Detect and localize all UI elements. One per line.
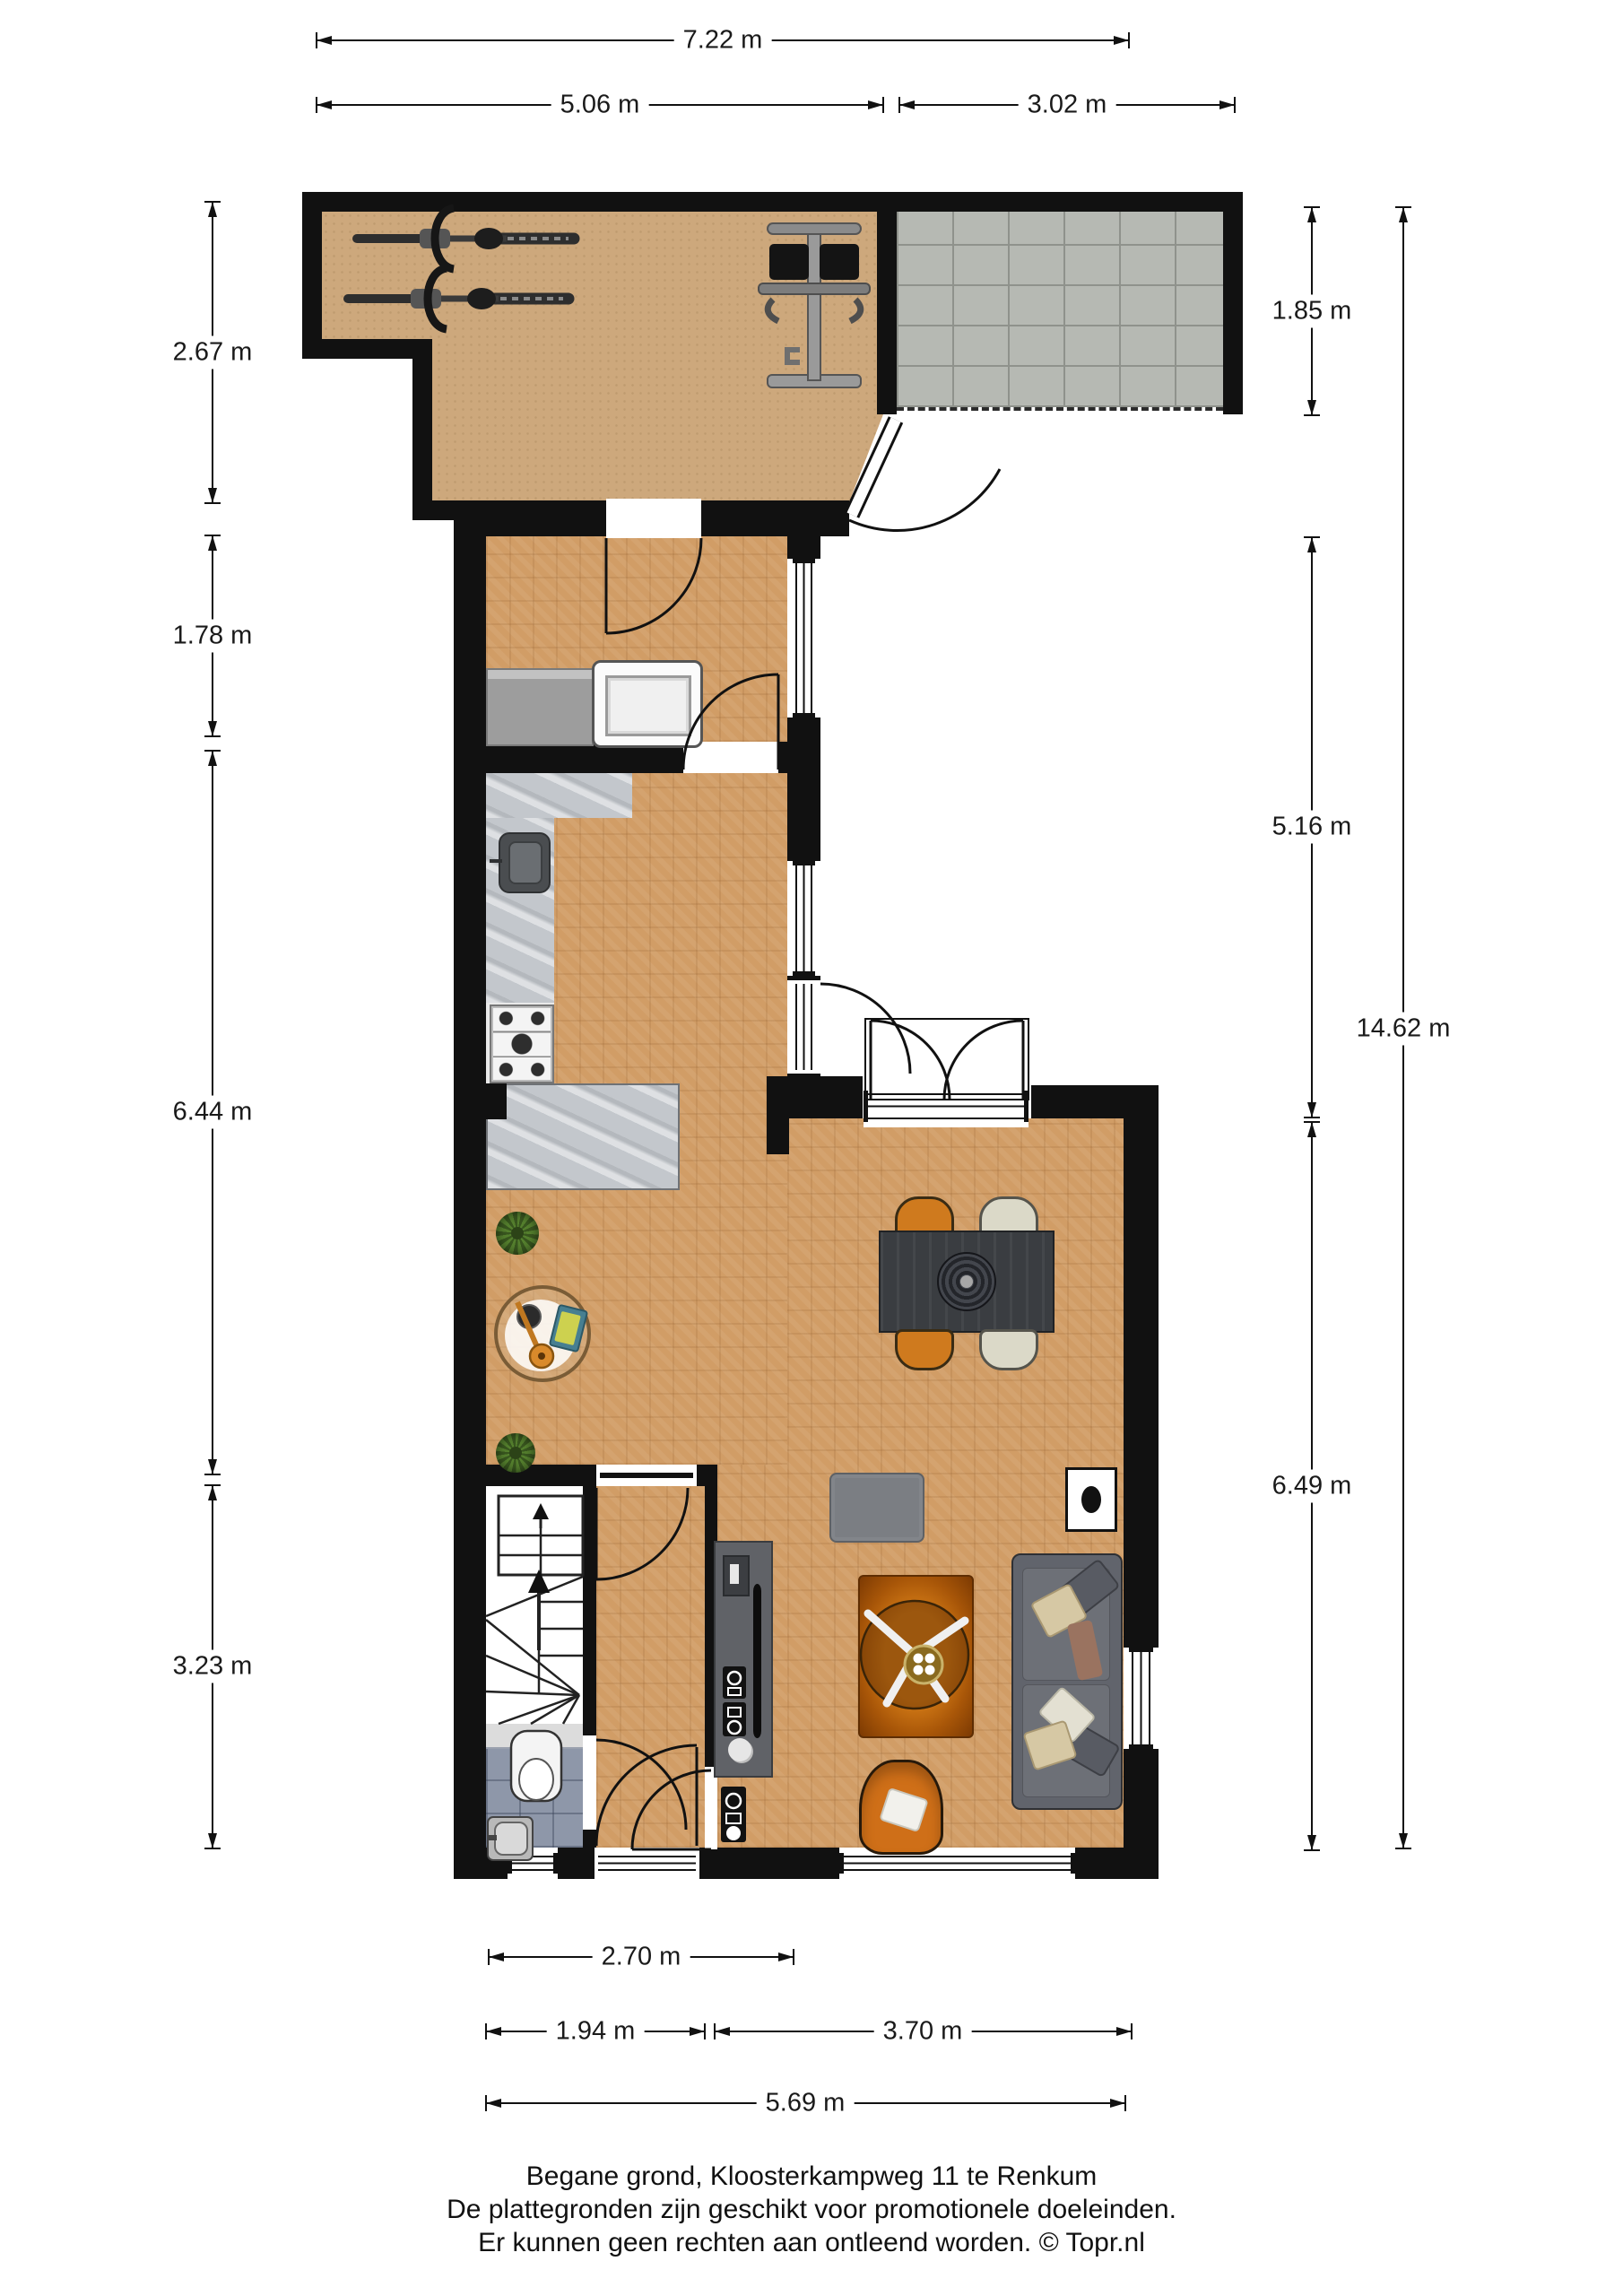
- rug-icon: [858, 1575, 974, 1738]
- wall-garage-left-upper: [302, 192, 322, 359]
- toilet-cistern-shelf: [486, 1724, 583, 1749]
- armchair-icon: [859, 1760, 943, 1855]
- plant-icon: [496, 1433, 535, 1473]
- kitchen-side-door: [787, 980, 820, 1074]
- dim-label: 3.02 m: [1019, 89, 1116, 122]
- plant-icon: [496, 1212, 539, 1255]
- french-doors-sill: [864, 1085, 1028, 1127]
- dining-chair-cream: [979, 1329, 1038, 1370]
- dim-label: 2.70 m: [593, 1941, 690, 1974]
- utility-window: [787, 559, 820, 717]
- media-device-icon: [723, 1555, 750, 1596]
- dim-label: 6.44 m: [164, 1096, 262, 1129]
- dim-label: 14.62 m: [1348, 1013, 1460, 1046]
- dim-label: 1.94 m: [547, 2015, 645, 2048]
- dim-label: 5.06 m: [551, 89, 649, 122]
- dim-label: 1.78 m: [164, 620, 262, 653]
- garage-utility-door-opening: [606, 499, 701, 538]
- patio-edge-dashed-line: [897, 404, 1223, 411]
- dim-label: 3.70 m: [874, 2015, 972, 2048]
- wall-patio-right: [1223, 192, 1243, 414]
- hallway-floor: [596, 1486, 705, 1848]
- toilet-window: [508, 1848, 558, 1879]
- footer-disclaimer-1: De plattegronden zijn geschikt voor prom…: [0, 2195, 1623, 2225]
- dim-label: 6.49 m: [1263, 1470, 1361, 1503]
- wall-garage-left-lower: [412, 339, 432, 520]
- dim-label: 5.69 m: [757, 2087, 855, 2120]
- kitchen-counter-slab: [486, 1083, 680, 1190]
- wall-passage-stub: [767, 1076, 863, 1118]
- hall-glass-door: [596, 1465, 697, 1486]
- dining-chair-orange: [895, 1329, 954, 1370]
- wall-passage-stub-leg: [767, 1118, 789, 1154]
- living-room-side-window: [1124, 1648, 1159, 1749]
- tv-cabinet-icon: [714, 1541, 773, 1778]
- pouf-icon: [829, 1473, 924, 1543]
- decor-object: [728, 1738, 751, 1761]
- dim-label: 2.67 m: [164, 336, 262, 370]
- front-door-threshold: [595, 1848, 699, 1879]
- hall-door-opening: [583, 1735, 596, 1830]
- floorplan-canvas: 7.22 m 5.06 m 3.02 m 2.67 m 1.78 m 6.44 …: [0, 0, 1623, 2296]
- tv-icon: [753, 1584, 761, 1738]
- armchair-pillow: [879, 1787, 928, 1832]
- dim-label: 3.23 m: [164, 1650, 262, 1683]
- sink-icon: [499, 832, 551, 893]
- sofa-icon: [1011, 1553, 1123, 1810]
- fireplace-icon: [1065, 1467, 1117, 1532]
- footer-disclaimer-2: Er kunnen geen rechten aan ontleend word…: [0, 2228, 1623, 2258]
- table-centerpiece: [937, 1252, 996, 1311]
- staircase-floor: [486, 1486, 583, 1724]
- dim-label: 7.22 m: [674, 24, 772, 57]
- dim-label: 5.16 m: [1263, 811, 1361, 844]
- patio-floor: [897, 212, 1223, 407]
- kitchen-window: [787, 861, 820, 976]
- side-door-arc: [820, 984, 910, 1074]
- washing-machine-icon: [592, 660, 703, 748]
- fridge-icon: [486, 668, 594, 746]
- kitchen-counter-top: [486, 773, 632, 818]
- wall-counter-pier: [486, 1083, 507, 1119]
- wall-house-right: [1124, 1085, 1159, 1879]
- stove-icon: [490, 1004, 554, 1083]
- dim-label: 1.85 m: [1263, 295, 1361, 328]
- wall-top: [302, 192, 1243, 212]
- footer-title: Begane grond, Kloosterkampweg 11 te Renk…: [0, 2161, 1623, 2192]
- wall-garage-patio-divider: [877, 212, 897, 414]
- living-hall-door-opening: [705, 1767, 717, 1849]
- garage-door-arc: [849, 469, 1000, 531]
- wall-house-left: [454, 500, 486, 1879]
